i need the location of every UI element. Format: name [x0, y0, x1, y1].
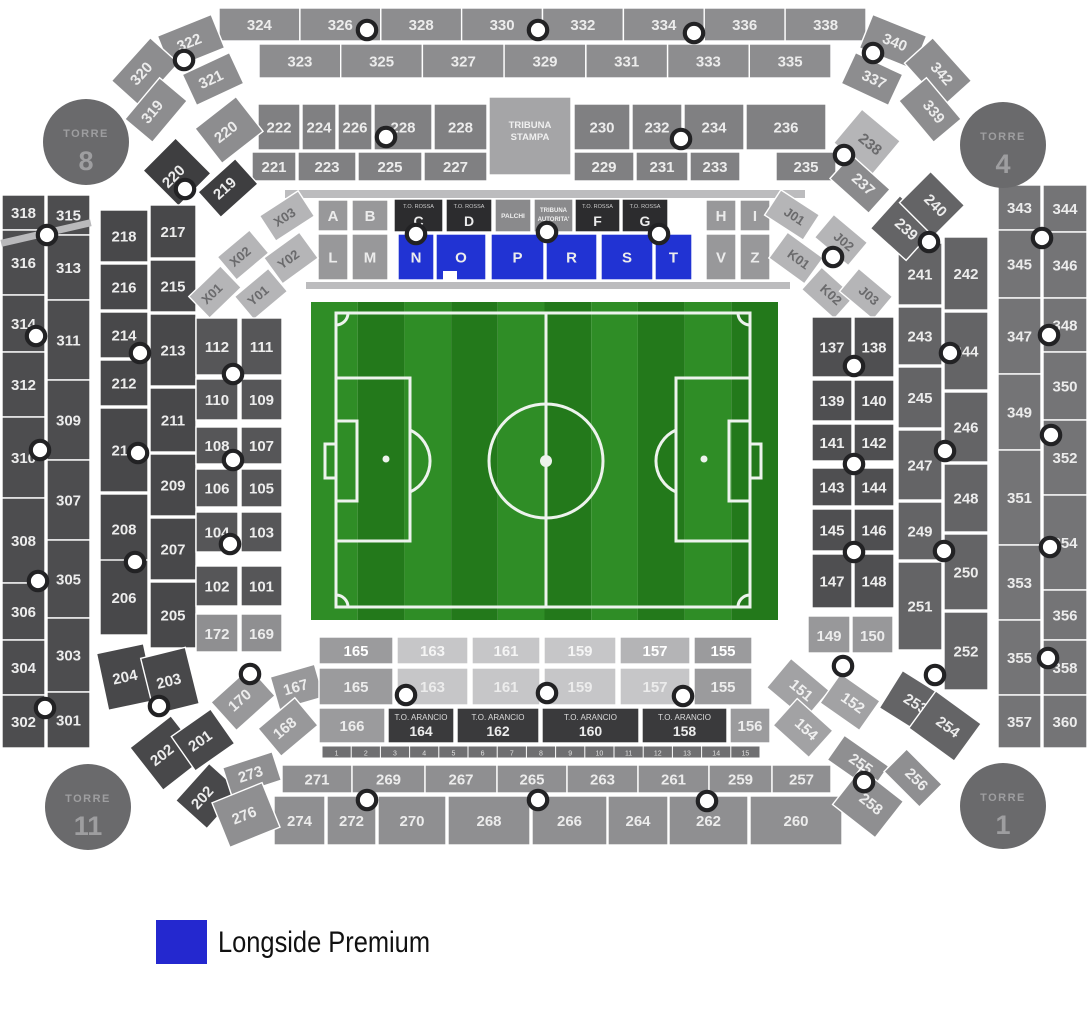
svg-text:259: 259: [728, 772, 753, 789]
svg-text:226: 226: [342, 120, 367, 137]
svg-text:O: O: [455, 250, 467, 267]
svg-text:T.O. ROSSA: T.O. ROSSA: [582, 204, 613, 210]
svg-text:328: 328: [409, 17, 434, 34]
svg-text:326: 326: [328, 17, 353, 34]
svg-text:353: 353: [1007, 575, 1032, 592]
svg-text:301: 301: [56, 713, 81, 730]
svg-text:1: 1: [335, 751, 339, 758]
svg-text:150: 150: [860, 628, 885, 645]
svg-text:217: 217: [160, 224, 185, 241]
svg-text:330: 330: [490, 17, 515, 34]
svg-text:148: 148: [861, 574, 886, 591]
svg-text:227: 227: [443, 159, 468, 176]
svg-text:4: 4: [995, 149, 1010, 179]
svg-text:140: 140: [861, 393, 886, 410]
svg-text:343: 343: [1007, 200, 1032, 217]
svg-text:270: 270: [399, 813, 424, 830]
svg-text:T.O. ROSSA: T.O. ROSSA: [630, 204, 661, 210]
svg-text:142: 142: [861, 435, 886, 452]
svg-text:234: 234: [701, 120, 727, 137]
svg-text:102: 102: [204, 579, 229, 596]
svg-text:TORRE: TORRE: [980, 792, 1026, 804]
svg-text:Z: Z: [750, 250, 759, 267]
svg-text:160: 160: [579, 723, 603, 739]
svg-text:112: 112: [205, 339, 229, 356]
svg-text:172: 172: [204, 626, 229, 643]
svg-text:101: 101: [249, 579, 274, 596]
svg-text:307: 307: [56, 493, 81, 510]
svg-text:223: 223: [314, 159, 339, 176]
svg-text:233: 233: [702, 159, 727, 176]
svg-text:149: 149: [816, 628, 841, 645]
svg-text:166: 166: [339, 718, 364, 735]
svg-text:103: 103: [249, 525, 274, 542]
svg-text:263: 263: [590, 772, 615, 789]
svg-text:209: 209: [160, 478, 185, 495]
svg-text:110: 110: [205, 392, 229, 409]
svg-text:R: R: [566, 250, 577, 267]
svg-text:315: 315: [56, 208, 81, 225]
svg-text:165: 165: [343, 643, 368, 660]
svg-text:9: 9: [568, 751, 572, 758]
svg-text:250: 250: [953, 565, 978, 582]
svg-text:245: 245: [907, 390, 932, 407]
svg-text:221: 221: [261, 159, 286, 176]
svg-text:105: 105: [249, 481, 274, 498]
svg-text:P: P: [512, 250, 522, 267]
svg-text:207: 207: [160, 542, 185, 559]
svg-text:4: 4: [422, 751, 426, 758]
svg-text:308: 308: [11, 533, 36, 550]
svg-text:225: 225: [377, 159, 402, 176]
svg-text:356: 356: [1052, 608, 1077, 625]
svg-text:145: 145: [819, 523, 844, 540]
svg-text:327: 327: [451, 54, 476, 71]
svg-text:111: 111: [250, 339, 273, 356]
svg-text:230: 230: [589, 120, 614, 137]
svg-text:137: 137: [819, 340, 844, 357]
svg-text:309: 309: [56, 413, 81, 430]
svg-text:247: 247: [907, 458, 932, 475]
svg-text:TORRE: TORRE: [980, 131, 1026, 143]
svg-text:158: 158: [673, 723, 697, 739]
svg-text:274: 274: [287, 813, 313, 830]
svg-text:336: 336: [732, 17, 757, 34]
svg-text:306: 306: [11, 604, 36, 621]
svg-text:S: S: [622, 250, 632, 267]
svg-text:11: 11: [74, 811, 103, 841]
svg-text:344: 344: [1052, 201, 1078, 218]
svg-text:156: 156: [737, 718, 762, 735]
svg-text:345: 345: [1007, 257, 1032, 274]
svg-text:109: 109: [249, 392, 274, 409]
svg-text:243: 243: [907, 329, 932, 346]
svg-text:163: 163: [420, 643, 445, 660]
svg-text:10: 10: [596, 751, 604, 758]
svg-text:269: 269: [376, 772, 401, 789]
svg-text:169: 169: [249, 626, 274, 643]
svg-text:8: 8: [539, 751, 543, 758]
svg-text:266: 266: [557, 813, 582, 830]
svg-text:7: 7: [510, 751, 514, 758]
svg-text:313: 313: [56, 260, 81, 277]
svg-text:228: 228: [448, 120, 473, 137]
svg-text:257: 257: [789, 772, 814, 789]
svg-text:15: 15: [742, 751, 750, 758]
svg-text:235: 235: [793, 159, 818, 176]
svg-text:5: 5: [451, 751, 455, 758]
svg-text:Longside Premium: Longside Premium: [218, 926, 430, 959]
svg-text:267: 267: [448, 772, 473, 789]
svg-text:157: 157: [642, 643, 667, 660]
svg-text:13: 13: [683, 751, 691, 758]
svg-text:312: 312: [11, 377, 36, 394]
svg-text:I: I: [753, 208, 757, 225]
svg-text:206: 206: [111, 590, 136, 607]
svg-text:232: 232: [644, 120, 669, 137]
svg-text:323: 323: [287, 54, 312, 71]
svg-text:347: 347: [1007, 329, 1032, 346]
svg-text:T.O. ARANCIO: T.O. ARANCIO: [564, 713, 617, 722]
svg-text:357: 357: [1007, 714, 1032, 731]
svg-text:PALCHI: PALCHI: [501, 213, 525, 220]
svg-text:212: 212: [111, 376, 136, 393]
svg-text:146: 146: [861, 523, 886, 540]
svg-text:242: 242: [953, 266, 978, 283]
svg-text:304: 304: [11, 660, 37, 677]
svg-text:138: 138: [861, 340, 886, 357]
svg-text:3: 3: [393, 751, 397, 758]
svg-text:251: 251: [907, 599, 932, 616]
svg-text:264: 264: [625, 813, 651, 830]
svg-text:B: B: [365, 208, 376, 225]
svg-text:M: M: [364, 250, 377, 267]
svg-text:F: F: [593, 213, 602, 229]
svg-text:236: 236: [773, 120, 798, 137]
svg-text:211: 211: [161, 413, 185, 430]
svg-text:316: 316: [11, 255, 36, 272]
svg-text:162: 162: [486, 723, 510, 739]
svg-text:329: 329: [532, 54, 557, 71]
svg-text:107: 107: [249, 438, 274, 455]
svg-text:338: 338: [813, 17, 838, 34]
svg-text:349: 349: [1007, 405, 1032, 422]
svg-text:222: 222: [266, 120, 291, 137]
svg-text:346: 346: [1052, 258, 1077, 275]
svg-text:305: 305: [56, 572, 81, 589]
svg-text:213: 213: [160, 343, 185, 360]
svg-text:12: 12: [654, 751, 662, 758]
svg-text:139: 139: [819, 393, 844, 410]
svg-text:271: 271: [304, 772, 329, 789]
svg-text:265: 265: [519, 772, 544, 789]
svg-text:331: 331: [614, 54, 639, 71]
svg-text:1: 1: [995, 810, 1010, 840]
svg-text:216: 216: [111, 280, 136, 297]
svg-text:161: 161: [493, 679, 518, 696]
svg-text:360: 360: [1052, 714, 1077, 731]
svg-text:V: V: [716, 250, 726, 267]
svg-text:272: 272: [339, 813, 364, 830]
svg-text:L: L: [328, 250, 337, 267]
svg-text:TORRE: TORRE: [63, 128, 109, 140]
svg-text:302: 302: [11, 714, 36, 731]
svg-text:8: 8: [78, 146, 93, 176]
svg-text:144: 144: [861, 480, 887, 497]
svg-text:318: 318: [11, 205, 36, 222]
svg-text:261: 261: [661, 772, 686, 789]
svg-text:165: 165: [343, 679, 368, 696]
svg-text:205: 205: [160, 608, 185, 625]
svg-text:303: 303: [56, 648, 81, 665]
svg-text:6: 6: [481, 751, 485, 758]
svg-text:262: 262: [696, 813, 721, 830]
svg-text:332: 332: [570, 17, 595, 34]
svg-text:159: 159: [567, 643, 592, 660]
svg-text:141: 141: [819, 435, 844, 452]
svg-text:252: 252: [953, 644, 978, 661]
svg-text:TRIBUNA: TRIBUNA: [540, 208, 568, 214]
svg-text:224: 224: [306, 120, 332, 137]
svg-text:241: 241: [907, 267, 932, 284]
svg-text:157: 157: [642, 679, 667, 696]
svg-text:208: 208: [111, 522, 136, 539]
svg-text:T: T: [669, 250, 678, 267]
svg-text:T.O. ROSSA: T.O. ROSSA: [403, 204, 434, 210]
svg-text:324: 324: [247, 17, 273, 34]
svg-text:355: 355: [1007, 650, 1032, 667]
svg-text:N: N: [411, 250, 422, 267]
svg-text:155: 155: [710, 679, 735, 696]
svg-text:155: 155: [710, 643, 735, 660]
svg-text:335: 335: [778, 54, 803, 71]
svg-text:147: 147: [819, 574, 844, 591]
svg-text:T.O. ARANCIO: T.O. ARANCIO: [472, 713, 525, 722]
svg-text:11: 11: [625, 751, 632, 758]
svg-text:311: 311: [56, 333, 80, 350]
svg-text:352: 352: [1052, 450, 1077, 467]
svg-text:STAMPA: STAMPA: [511, 132, 550, 143]
svg-text:G: G: [640, 213, 651, 229]
svg-text:333: 333: [696, 54, 721, 71]
svg-text:T.O. ARANCIO: T.O. ARANCIO: [395, 713, 448, 722]
svg-text:A: A: [328, 208, 339, 225]
svg-text:T.O. ARANCIO: T.O. ARANCIO: [658, 713, 711, 722]
svg-text:159: 159: [567, 679, 592, 696]
svg-text:229: 229: [591, 159, 616, 176]
svg-text:218: 218: [111, 229, 136, 246]
svg-text:D: D: [464, 213, 474, 229]
svg-text:351: 351: [1007, 490, 1032, 507]
svg-text:246: 246: [953, 420, 978, 437]
svg-text:2: 2: [364, 751, 368, 758]
svg-text:161: 161: [493, 643, 518, 660]
svg-text:164: 164: [409, 723, 433, 739]
svg-text:14: 14: [712, 751, 720, 758]
svg-text:325: 325: [369, 54, 394, 71]
svg-text:334: 334: [651, 17, 677, 34]
svg-text:H: H: [716, 208, 727, 225]
svg-text:T.O. ROSSA: T.O. ROSSA: [454, 204, 485, 210]
svg-text:231: 231: [649, 159, 674, 176]
svg-text:163: 163: [420, 679, 445, 696]
svg-text:TRIBUNA: TRIBUNA: [509, 120, 552, 131]
svg-text:143: 143: [819, 480, 844, 497]
svg-text:268: 268: [476, 813, 501, 830]
svg-text:350: 350: [1052, 379, 1077, 396]
svg-text:TORRE: TORRE: [65, 793, 111, 805]
svg-text:260: 260: [783, 813, 808, 830]
svg-text:106: 106: [204, 481, 229, 498]
svg-text:248: 248: [953, 491, 978, 508]
svg-text:214: 214: [111, 328, 137, 345]
svg-text:215: 215: [160, 279, 185, 296]
svg-text:249: 249: [907, 524, 932, 541]
